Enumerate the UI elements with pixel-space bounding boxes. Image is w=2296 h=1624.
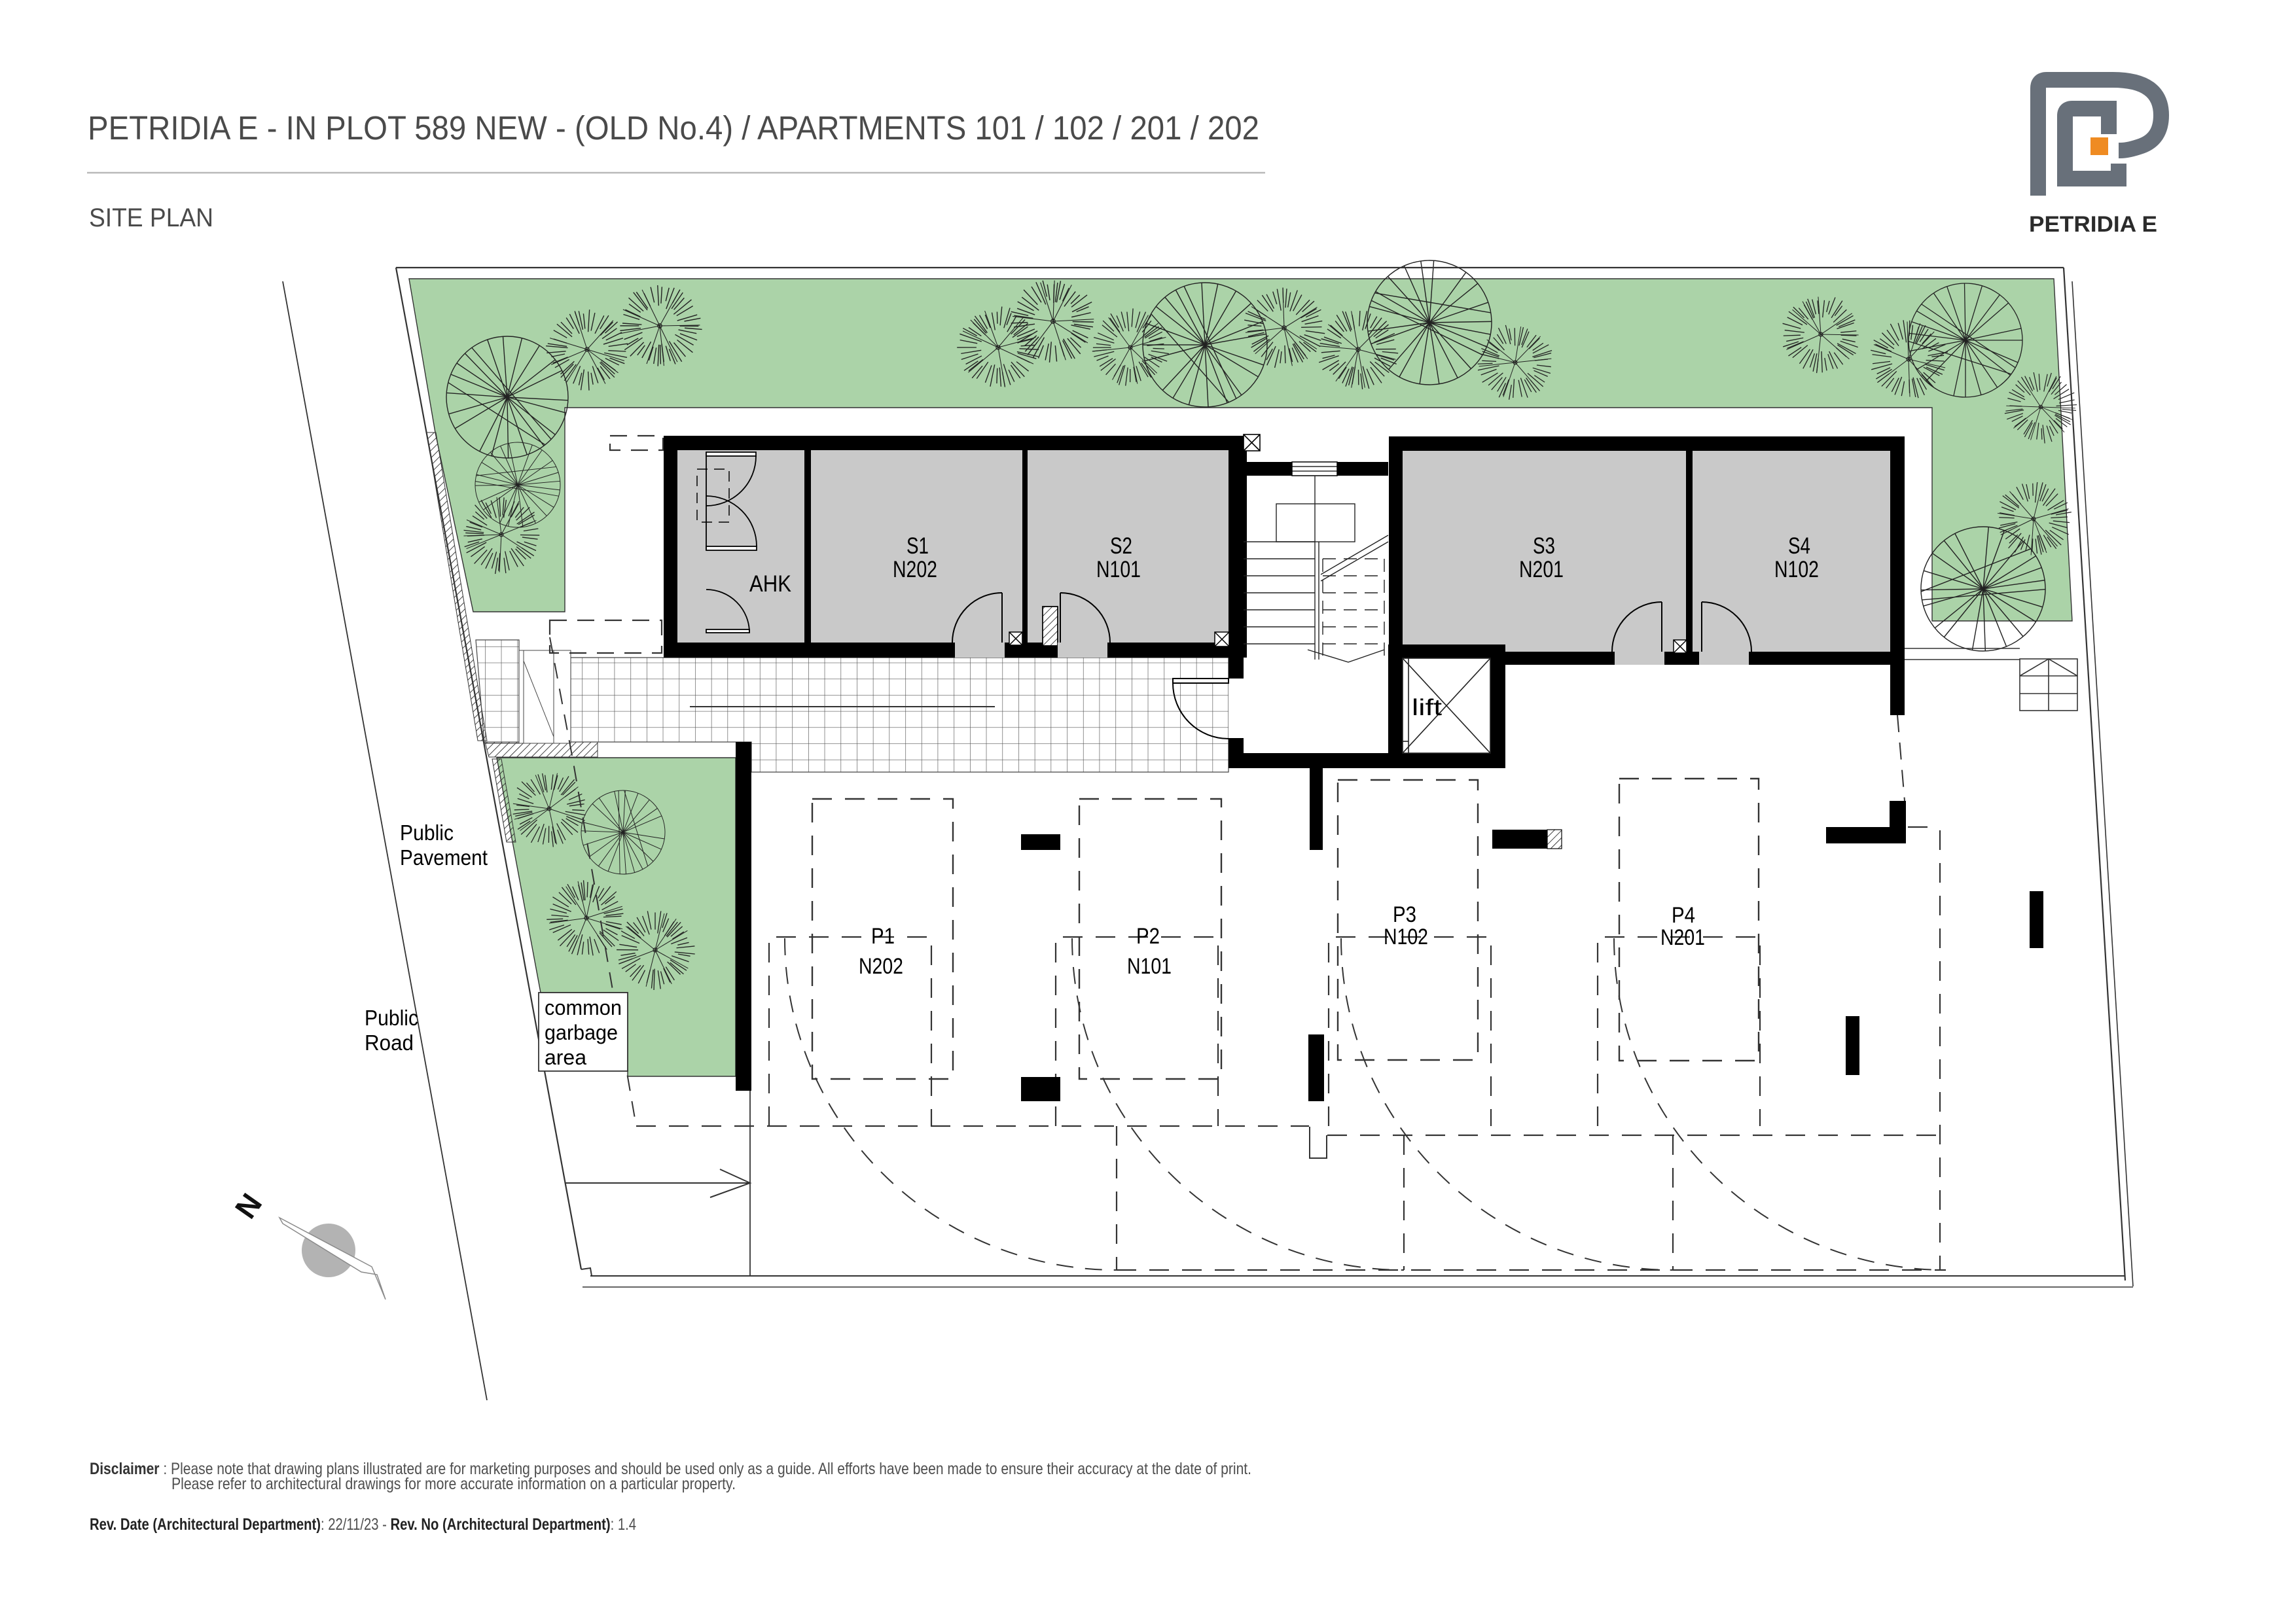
svg-text:S3: S3 — [1533, 533, 1555, 559]
svg-text:common: common — [545, 996, 622, 1019]
svg-text:S2: S2 — [1110, 533, 1132, 559]
svg-text:S4: S4 — [1788, 533, 1810, 559]
svg-text:area: area — [545, 1046, 586, 1069]
svg-text:S1: S1 — [906, 533, 929, 559]
svg-text:P2: P2 — [1136, 924, 1160, 949]
svg-text:N101: N101 — [1127, 954, 1172, 979]
svg-text:Public: Public — [365, 1006, 418, 1030]
svg-text:SITE PLAN: SITE PLAN — [89, 203, 213, 232]
svg-text:PETRIDIA E - IN PLOT 589 NEW -: PETRIDIA E - IN PLOT 589 NEW - (OLD No.4… — [88, 109, 1259, 147]
svg-text:Public: Public — [400, 821, 454, 845]
svg-text:N202: N202 — [859, 954, 903, 979]
svg-text:Pavement: Pavement — [400, 845, 488, 870]
svg-text:PETRIDIA E: PETRIDIA E — [2029, 212, 2157, 237]
svg-text:N201: N201 — [1519, 557, 1564, 582]
svg-text:Road: Road — [365, 1031, 414, 1055]
svg-text:N201: N201 — [1660, 925, 1705, 950]
svg-text:P3: P3 — [1393, 902, 1416, 927]
svg-text:N102: N102 — [1774, 557, 1819, 582]
svg-text:Rev. Date (Architectural Depar: Rev. Date (Architectural Department): 22… — [90, 1515, 636, 1534]
svg-text:P1: P1 — [871, 924, 895, 949]
svg-text:Please refer to architectural: Please refer to architectural drawings f… — [171, 1475, 736, 1493]
svg-text:N202: N202 — [893, 557, 937, 582]
svg-text:AHK: AHK — [749, 571, 791, 597]
svg-text:lift: lift — [1412, 695, 1442, 720]
svg-text:N102: N102 — [1384, 925, 1428, 949]
svg-text:N101: N101 — [1096, 557, 1141, 582]
svg-text:garbage: garbage — [545, 1021, 618, 1044]
svg-text:P4: P4 — [1672, 903, 1695, 928]
